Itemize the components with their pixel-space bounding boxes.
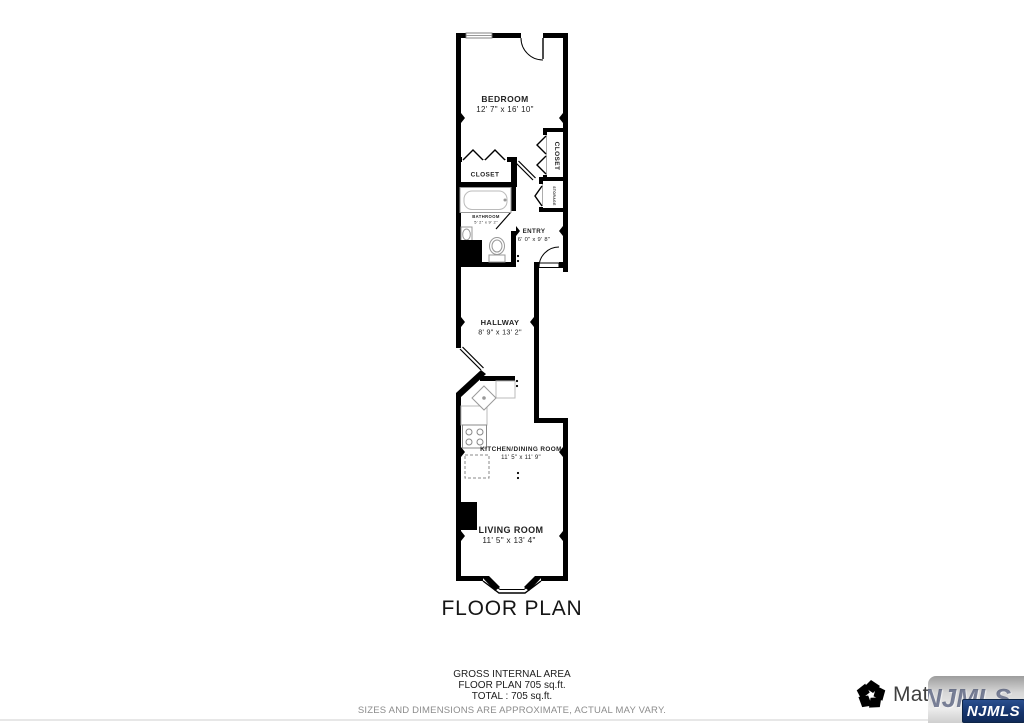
- matterport-pinwheel-icon: [855, 679, 887, 711]
- storage-label: STORAGE: [552, 186, 556, 206]
- bedroom-label: BEDROOM 12' 7" x 16' 10": [476, 94, 534, 114]
- living-room-dims: 11' 5" x 13' 4": [482, 536, 535, 545]
- stove-symbol: [463, 425, 487, 448]
- kitchen-dims: 11' 5" x 11' 9": [501, 455, 541, 461]
- closet-right-label: CLOSET: [553, 142, 560, 171]
- closet-left-label: CLOSET: [471, 172, 500, 179]
- bedroom-name: BEDROOM: [481, 94, 528, 104]
- front-door-symbol: [539, 247, 559, 268]
- hallway-label: HALLWAY 8' 9" x 13' 2": [478, 318, 522, 337]
- hallway-name: HALLWAY: [481, 318, 520, 327]
- bedroom-entry-door-symbol: [521, 38, 543, 60]
- hallway-dims: 8' 9" x 13' 2": [478, 328, 522, 337]
- refrigerator-symbol: [465, 455, 489, 478]
- bathtub-symbol: [460, 188, 511, 213]
- entry-label: ENTRY 6' 0" x 9' 8": [518, 228, 550, 243]
- entry-name: ENTRY: [523, 228, 546, 235]
- bathroom-dims: 5' 2" x 9' 2": [474, 220, 498, 225]
- duct-shaft: [457, 240, 482, 262]
- bathroom-label: BATHROOM 5' 2" x 9' 2": [472, 214, 500, 225]
- toilet-symbol: [489, 238, 505, 263]
- entry-dims: 6' 0" x 9' 8": [518, 237, 550, 243]
- bathroom-sink-symbol: [461, 227, 472, 242]
- bedroom-dims: 12' 7" x 16' 10": [476, 105, 534, 114]
- kitchen-label: KITCHEN/DINING ROOM 11' 5" x 11' 9": [480, 446, 562, 461]
- living-room-name: LIVING ROOM: [479, 525, 544, 535]
- hallway-door-symbol: [460, 347, 484, 370]
- kitchen-name: KITCHEN/DINING ROOM: [480, 446, 562, 453]
- living-room-label: LIVING ROOM 11' 5" x 13' 4": [479, 525, 544, 545]
- bathroom-name: BATHROOM: [472, 214, 500, 219]
- walls: [456, 33, 568, 591]
- njmls-badge: NJMLS: [962, 699, 1024, 723]
- floor-plan-title: FLOOR PLAN: [0, 597, 1024, 621]
- bottom-edge-line: [0, 719, 1024, 721]
- bedroom-window-symbol: [466, 33, 492, 38]
